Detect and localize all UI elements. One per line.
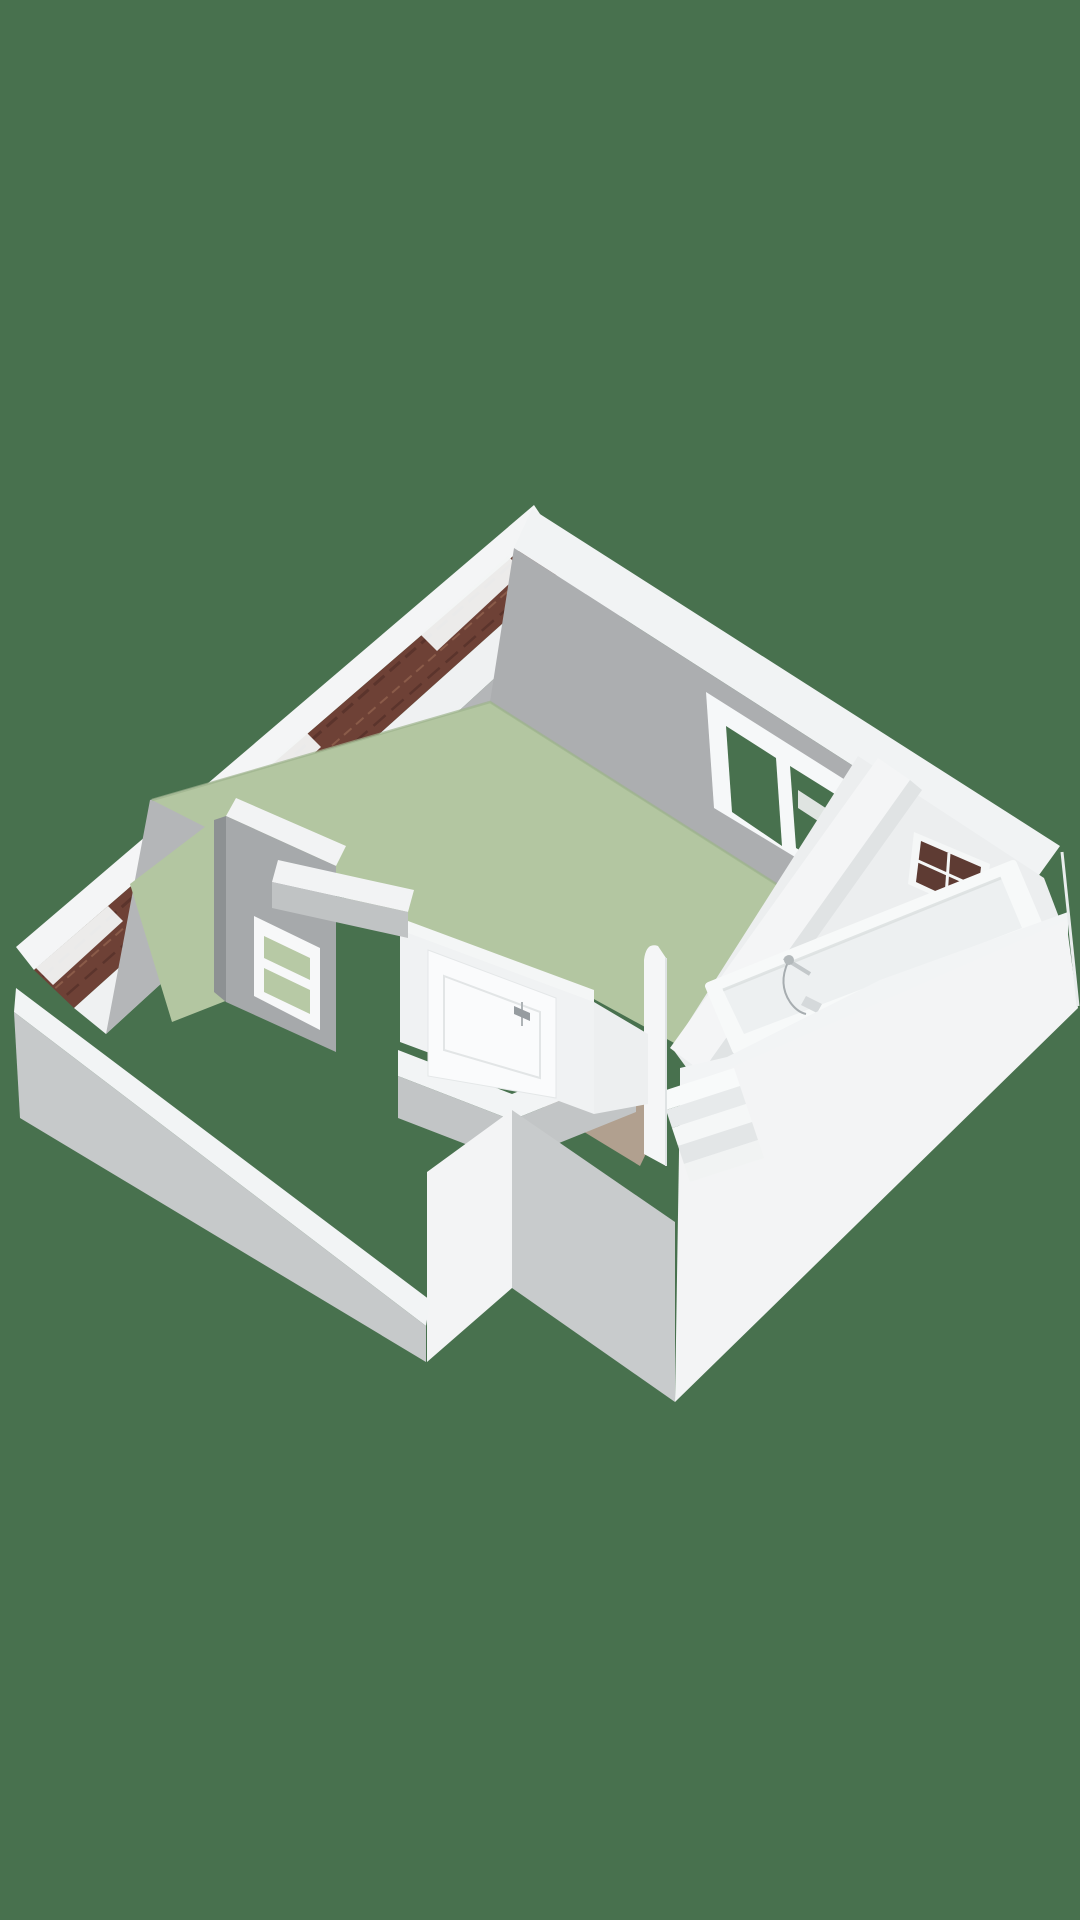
sw-wall-top-band [14, 988, 430, 1326]
floorplan-3d-render [0, 0, 1080, 1920]
notch-white-face [427, 1110, 512, 1362]
floorplan-scene [0, 0, 1080, 1920]
shower-head [784, 955, 794, 965]
storage-wall-edge [214, 816, 226, 1002]
sw-outer-wall-face [14, 1012, 426, 1362]
